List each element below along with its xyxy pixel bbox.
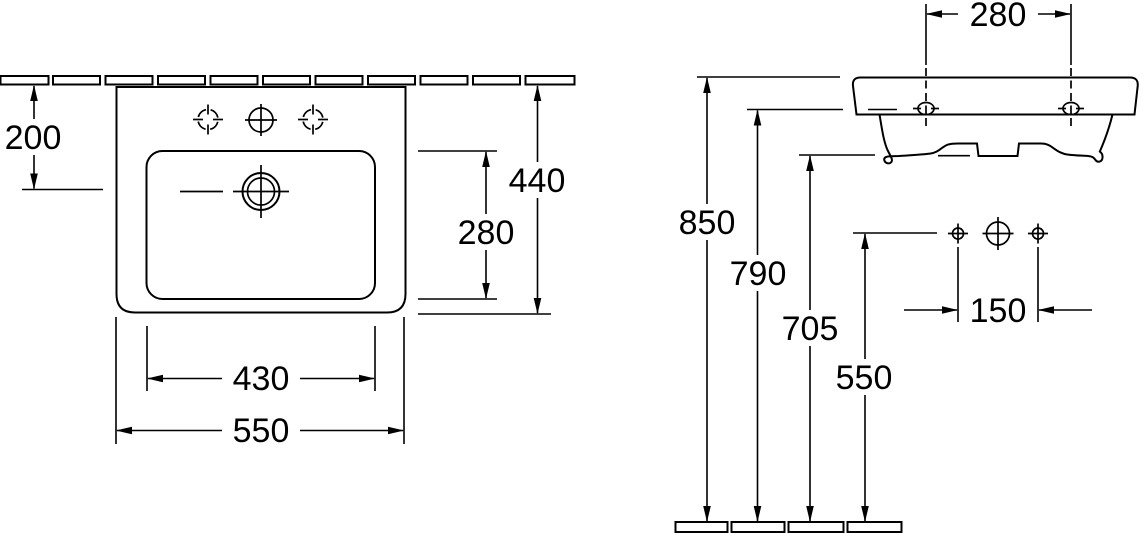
dim-label-430: 430 <box>233 360 290 398</box>
plan-view: 200 440 280 430 <box>1 76 575 450</box>
dim-underside-height: 790 <box>730 110 787 523</box>
dim-label-150: 150 <box>970 292 1027 330</box>
wall-tap-hole-right <box>1028 224 1048 244</box>
dim-wall-to-drain: 200 <box>5 85 103 190</box>
floor-tiles <box>676 522 902 532</box>
dim-inner-depth: 280 <box>418 151 514 299</box>
dim-label-200: 200 <box>5 119 62 157</box>
dim-rim-height: 850 <box>679 77 736 522</box>
dim-inner-width: 430 <box>147 326 375 398</box>
dim-outlet-height: 705 <box>782 155 839 522</box>
wall-tap-hole-left <box>948 224 968 244</box>
dim-label-440: 440 <box>509 162 566 200</box>
technical-drawing: 200 440 280 430 <box>0 0 1143 533</box>
dim-tap-spacing: 150 <box>904 247 1092 330</box>
wall-tiles <box>1 76 575 85</box>
dim-label-550-front: 550 <box>836 359 893 397</box>
basin-bowl-front <box>880 115 1113 164</box>
dim-fixing-spacing: 280 <box>926 0 1071 65</box>
front-view: 280 150 <box>676 0 1138 532</box>
dim-label-705: 705 <box>782 310 839 348</box>
dim-label-280-front: 280 <box>970 0 1027 34</box>
dim-label-850: 850 <box>679 204 736 242</box>
dim-outer-depth: 440 <box>418 85 565 314</box>
dim-tap-height: 550 <box>836 233 893 522</box>
wall-tap-hole-center <box>983 217 1014 250</box>
dim-label-550-plan: 550 <box>233 412 290 450</box>
dim-label-280-plan: 280 <box>458 214 515 252</box>
dim-label-790: 790 <box>730 255 787 293</box>
